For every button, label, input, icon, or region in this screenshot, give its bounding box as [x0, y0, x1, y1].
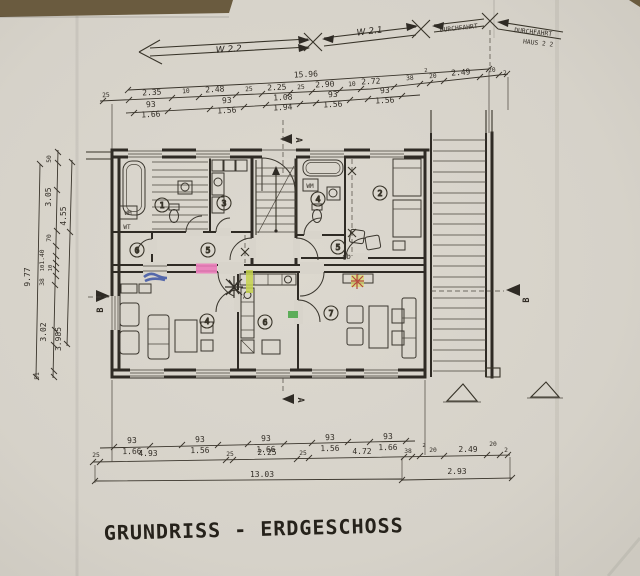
dim: 20 [429, 73, 437, 81]
dim: 1.40 [39, 249, 46, 264]
dim: 2 [424, 68, 428, 74]
dim: 93 [380, 86, 390, 96]
dim: 4.72 [352, 447, 371, 456]
dim: 20 [489, 441, 497, 448]
dim: 93 [261, 434, 271, 443]
dim: 4.55 [59, 206, 68, 225]
dim: 4.93 [138, 449, 157, 458]
dim: 25 [102, 92, 110, 99]
wm-label: WM [306, 183, 314, 190]
highlight-pink [196, 264, 217, 274]
dim: 10 [40, 265, 46, 272]
section-a-label: A [295, 397, 305, 402]
dim: 25 [299, 450, 307, 457]
dim: 2.49 [451, 67, 471, 77]
dim-overall-left: 9.77 [23, 267, 32, 286]
highlight-green [288, 311, 298, 318]
dim: 10 [182, 88, 190, 95]
dim: 1.56 [320, 444, 340, 453]
dim: 3.985 [54, 327, 63, 351]
dim: 2 [504, 447, 508, 454]
dim: 2 [422, 443, 425, 449]
room-number: 3 [222, 199, 227, 208]
dim: 2.35 [142, 87, 162, 97]
dim: 93 [328, 90, 338, 100]
room-number: 4 [316, 195, 321, 204]
dim: 38 [406, 75, 414, 83]
dim: 1.66 [141, 109, 161, 119]
dim: 1.08 [273, 92, 293, 102]
dim: 25 [297, 84, 305, 91]
dim: 1.56 [217, 105, 237, 115]
dim: 2.25 [257, 448, 276, 457]
room-number: 4 [205, 317, 210, 326]
dim-overall-bottom: 2.93 [447, 467, 466, 476]
wm-label: WM [124, 210, 132, 217]
dim: 1.94 [273, 102, 293, 112]
dim: 3.02 [39, 322, 48, 341]
dim: 38 [404, 448, 412, 455]
section-b-label: B [96, 307, 106, 312]
section-a-label: A [293, 137, 303, 142]
dim: 20 [488, 67, 496, 75]
dim: 2.72 [361, 76, 381, 86]
dim: 50 [46, 155, 53, 163]
dim: 10 [348, 81, 356, 88]
room-number: 6 [263, 318, 268, 327]
dim: 3.05 [44, 187, 53, 206]
dim: 1.56 [323, 99, 343, 109]
highlight-yellow-green [246, 270, 253, 293]
dim: 93 [222, 96, 232, 106]
room-number: 5 [336, 243, 341, 252]
room-number: 2 [378, 189, 383, 198]
wing-left-label: W 2.2 [216, 44, 243, 56]
section-b-label: B [522, 297, 532, 302]
dim: 2.49 [458, 445, 477, 454]
dim: 93 [383, 432, 393, 441]
dim: 2.90 [315, 79, 335, 89]
scanned-floor-plan-page: W 2.2 W 2.1 DURCHFAHRT DURCHFAHRT HAUS 2… [0, 0, 640, 576]
dim: 1.56 [375, 95, 395, 105]
plant-icon-red [351, 274, 364, 289]
dim: 10 [48, 265, 54, 272]
dim-overall-bottom: 13.03 [250, 470, 274, 479]
dim: 93 [325, 433, 335, 442]
dim: 51 [34, 372, 41, 380]
dim: 93 [146, 100, 156, 110]
dim: 2.48 [205, 84, 225, 94]
dim: 1.56 [190, 446, 210, 455]
dim: 25 [226, 451, 234, 458]
dim: 93 [195, 435, 205, 444]
dim-overall-top: 15.96 [294, 69, 319, 79]
room-number: 1 [160, 201, 165, 210]
dim: 2.25 [267, 82, 287, 92]
room-number: 5 [206, 246, 211, 255]
dim: 1.66 [378, 443, 398, 452]
floor-plan-drawing: W 2.2 W 2.1 DURCHFAHRT DURCHFAHRT HAUS 2… [0, 0, 640, 576]
dim: 20 [429, 447, 437, 454]
wt-label: WT [123, 224, 131, 231]
room-number: 6 [135, 246, 140, 255]
dim: 2 [503, 70, 507, 77]
dim: 38 [39, 278, 46, 286]
dim: 25 [245, 86, 253, 93]
dim: 25 [92, 452, 100, 459]
dim: 93 [127, 436, 137, 445]
dim: 70 [46, 234, 53, 242]
room-number: 7 [329, 309, 334, 318]
